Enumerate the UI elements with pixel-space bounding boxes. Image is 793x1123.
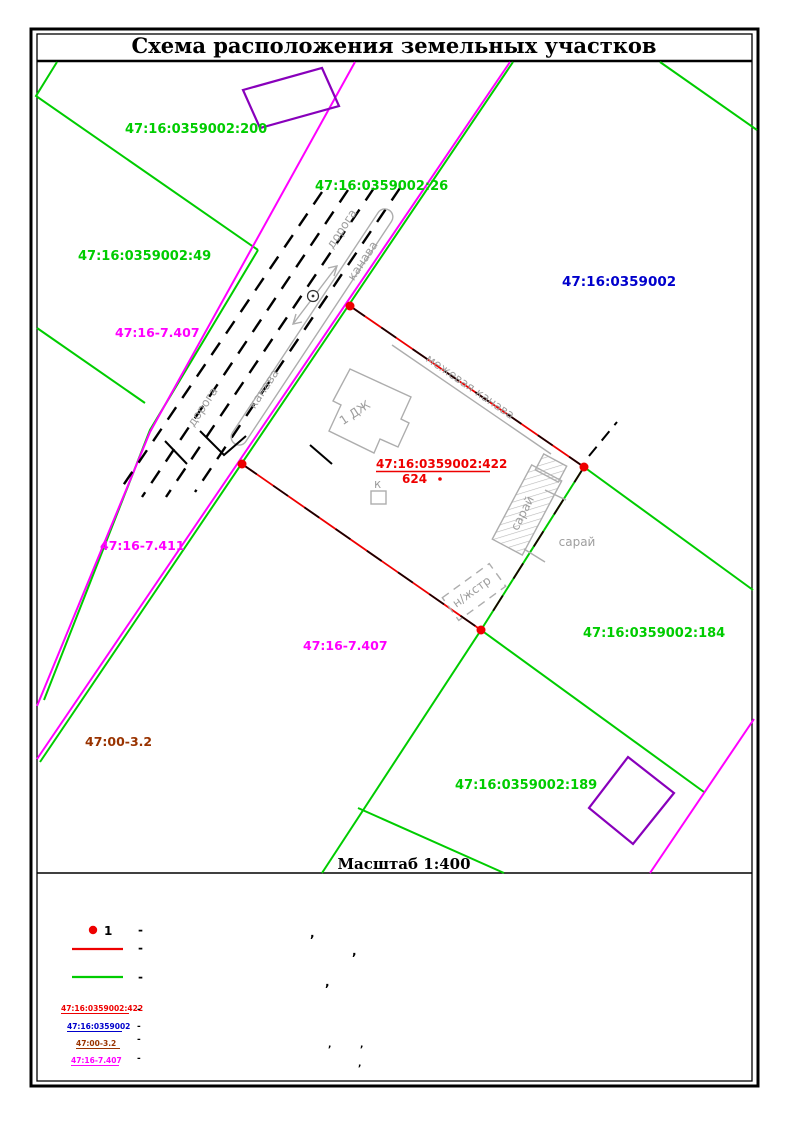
ditch-label-lower: канава	[246, 366, 282, 411]
legend-separator-3: -	[138, 970, 143, 984]
boundary-green-parcel200	[36, 62, 258, 250]
parcel-label-26: 47:16:0359002:26	[315, 179, 448, 194]
shed-label-right: сарай	[559, 535, 596, 549]
house-label: 1 ДЖ	[337, 398, 373, 428]
boundary-green-road-east	[40, 62, 513, 762]
building-k-outline	[371, 491, 386, 504]
cadastral-scheme-page: Схема расположения земельных участков	[0, 0, 793, 1123]
scheme-canvas: Схема расположения земельных участков	[0, 0, 793, 1123]
road-dash-line-1	[195, 188, 400, 492]
black-tick-3	[310, 445, 332, 464]
zone-label-00-32: 47:00-3.2	[85, 734, 152, 749]
legend-label-00-32: 47:00-3.2	[76, 1039, 116, 1048]
legend-separator-6: -	[137, 1035, 141, 1045]
legend-separator-7: -	[137, 1054, 141, 1064]
legend-label-7407: 47:16-7.407	[71, 1056, 122, 1065]
legend-point-symbol	[89, 926, 97, 934]
boundary-green-southwest	[322, 630, 481, 873]
road-dash-line-4	[120, 192, 322, 490]
survey-point-center-dot	[312, 295, 315, 298]
black-dash-northeast	[589, 422, 617, 456]
building-purple-bottom	[589, 757, 674, 844]
legend-comma-2: ,	[352, 944, 357, 958]
legend-separator-2: -	[138, 941, 143, 955]
legend-comma-6: ,	[358, 1059, 361, 1069]
parcel-label-189: 47:16:0359002:189	[455, 778, 597, 793]
road-label-upper: дорога	[324, 206, 360, 251]
zone-label-7407-lower: 47:16-7.407	[303, 638, 388, 653]
outbuilding-k-label: к	[374, 477, 381, 491]
parcel-label-422: 47:16:0359002:422	[376, 457, 507, 471]
legend-label-422: 47:16:0359002:422	[61, 1004, 143, 1013]
vertex-dot-south	[477, 626, 486, 635]
legend-separator-5: -	[137, 1022, 141, 1032]
zone-label-7407-upper: 47:16-7.407	[115, 325, 200, 340]
black-tick-1	[165, 441, 187, 464]
vertex-dot-east	[580, 463, 589, 472]
zone-label-7411: 47:16-7.411	[100, 538, 185, 553]
boundary-magenta-road-west	[37, 62, 355, 706]
nonresidential-label: н/жстр	[450, 573, 494, 610]
road-label-lower: дорога	[185, 384, 221, 429]
parcel-label-422-dot	[438, 477, 442, 481]
boundary-magenta-road-east	[37, 62, 510, 759]
parcel-label-49: 47:16:0359002:49	[78, 249, 211, 264]
parcel-label-422-number: 624	[402, 472, 427, 486]
legend-label-quarter: 47:16:0359002	[67, 1022, 130, 1031]
parcel-label-200: 47:16:0359002:200	[125, 122, 267, 137]
legend-separator-4: -	[137, 1005, 141, 1015]
legend-point-number: 1	[104, 924, 112, 938]
boundary-ditch-label: межевая канава	[423, 351, 517, 422]
parcel-label-184: 47:16:0359002:184	[583, 626, 725, 641]
legend-comma-3: ,	[325, 975, 330, 989]
vertex-dot-north	[346, 302, 355, 311]
quarter-label: 47:16:0359002	[562, 274, 676, 290]
boundary-magenta-bottomright	[650, 719, 754, 873]
legend-comma-5: ,	[360, 1040, 363, 1050]
building-purple-top	[243, 68, 339, 128]
boundary-ditch-line	[392, 345, 551, 454]
scale-label: Масштаб 1:400	[337, 855, 470, 873]
boundary-green-east	[584, 467, 753, 590]
vertex-dot-west	[238, 460, 247, 469]
legend-comma-1: ,	[310, 926, 315, 940]
page-title: Схема расположения земельных участков	[131, 33, 656, 58]
legend-comma-4: ,	[328, 1040, 331, 1050]
boundary-green-topright	[660, 62, 757, 130]
boundary-green-parcel184	[481, 630, 704, 792]
legend-separator-1: -	[138, 923, 143, 937]
boundary-green-parcel49-east	[44, 250, 258, 700]
